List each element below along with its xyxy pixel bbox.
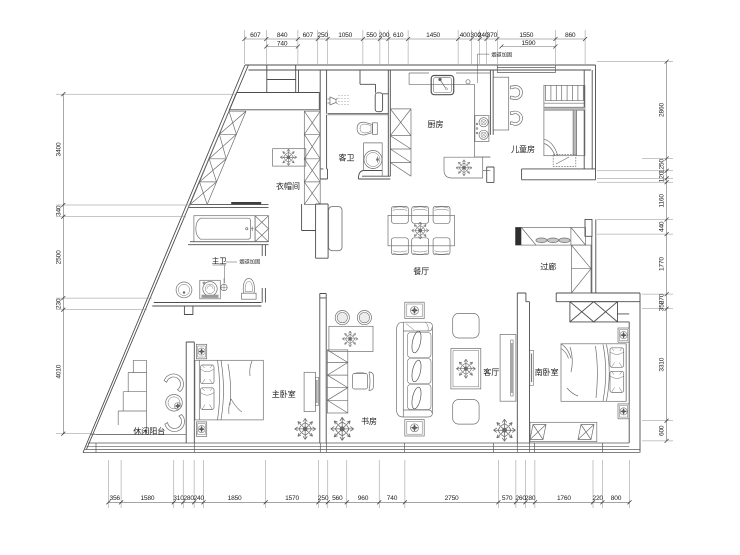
svg-text:250: 250 xyxy=(318,495,329,502)
svg-text:儿童房: 儿童房 xyxy=(511,144,535,154)
svg-text:1250: 1250 xyxy=(659,159,666,173)
svg-text:烟道加固: 烟道加固 xyxy=(239,257,260,265)
svg-text:休闲阳台: 休闲阳台 xyxy=(133,426,165,436)
svg-text:过廊: 过廊 xyxy=(540,262,556,272)
svg-text:1580: 1580 xyxy=(140,495,154,502)
svg-text:340: 340 xyxy=(56,205,63,216)
svg-text:960: 960 xyxy=(358,495,369,502)
svg-text:280: 280 xyxy=(525,495,536,502)
svg-text:1450: 1450 xyxy=(426,32,440,39)
svg-text:4010: 4010 xyxy=(56,364,63,378)
svg-text:240: 240 xyxy=(194,495,205,502)
svg-text:衣帽间: 衣帽间 xyxy=(276,181,300,191)
svg-text:440: 440 xyxy=(659,221,666,232)
svg-text:1850: 1850 xyxy=(228,495,242,502)
svg-text:书房: 书房 xyxy=(361,416,377,426)
svg-text:1770: 1770 xyxy=(659,257,666,271)
svg-text:800: 800 xyxy=(611,495,622,502)
svg-text:3400: 3400 xyxy=(56,142,63,156)
svg-text:客卫: 客卫 xyxy=(339,153,355,163)
svg-text:南卧室: 南卧室 xyxy=(535,367,559,377)
svg-text:220: 220 xyxy=(592,495,603,502)
svg-text:1590: 1590 xyxy=(521,40,535,47)
svg-text:2750: 2750 xyxy=(445,495,459,502)
svg-text:厨房: 厨房 xyxy=(428,119,444,129)
svg-text:230: 230 xyxy=(56,298,63,309)
svg-text:356: 356 xyxy=(109,495,120,502)
svg-text:主卫: 主卫 xyxy=(212,256,227,266)
svg-text:2500: 2500 xyxy=(56,250,63,264)
svg-text:607: 607 xyxy=(303,32,314,39)
svg-text:1050: 1050 xyxy=(338,32,352,39)
svg-text:客厅: 客厅 xyxy=(483,367,499,377)
svg-text:250: 250 xyxy=(317,32,328,39)
svg-text:1760: 1760 xyxy=(557,495,571,502)
svg-text:120: 120 xyxy=(659,171,666,182)
svg-text:1160: 1160 xyxy=(659,194,666,208)
svg-text:560: 560 xyxy=(332,495,343,502)
svg-text:610: 610 xyxy=(393,32,404,39)
svg-text:350: 350 xyxy=(659,300,666,311)
svg-text:740: 740 xyxy=(387,495,398,502)
svg-text:840: 840 xyxy=(277,32,288,39)
svg-text:550: 550 xyxy=(366,32,377,39)
svg-text:2860: 2860 xyxy=(659,103,666,117)
svg-text:400: 400 xyxy=(460,32,471,39)
svg-text:烟道加固: 烟道加固 xyxy=(491,51,512,59)
svg-text:570: 570 xyxy=(502,495,513,502)
svg-text:860: 860 xyxy=(565,32,576,39)
svg-text:1550: 1550 xyxy=(519,32,533,39)
svg-text:3310: 3310 xyxy=(659,357,666,371)
svg-text:600: 600 xyxy=(659,425,666,436)
svg-text:370: 370 xyxy=(487,32,498,39)
svg-text:607: 607 xyxy=(250,32,261,39)
svg-text:740: 740 xyxy=(277,41,288,48)
svg-text:餐厅: 餐厅 xyxy=(413,267,429,276)
svg-text:200: 200 xyxy=(379,32,390,39)
svg-text:1570: 1570 xyxy=(285,495,299,502)
svg-text:主卧室: 主卧室 xyxy=(272,389,296,399)
